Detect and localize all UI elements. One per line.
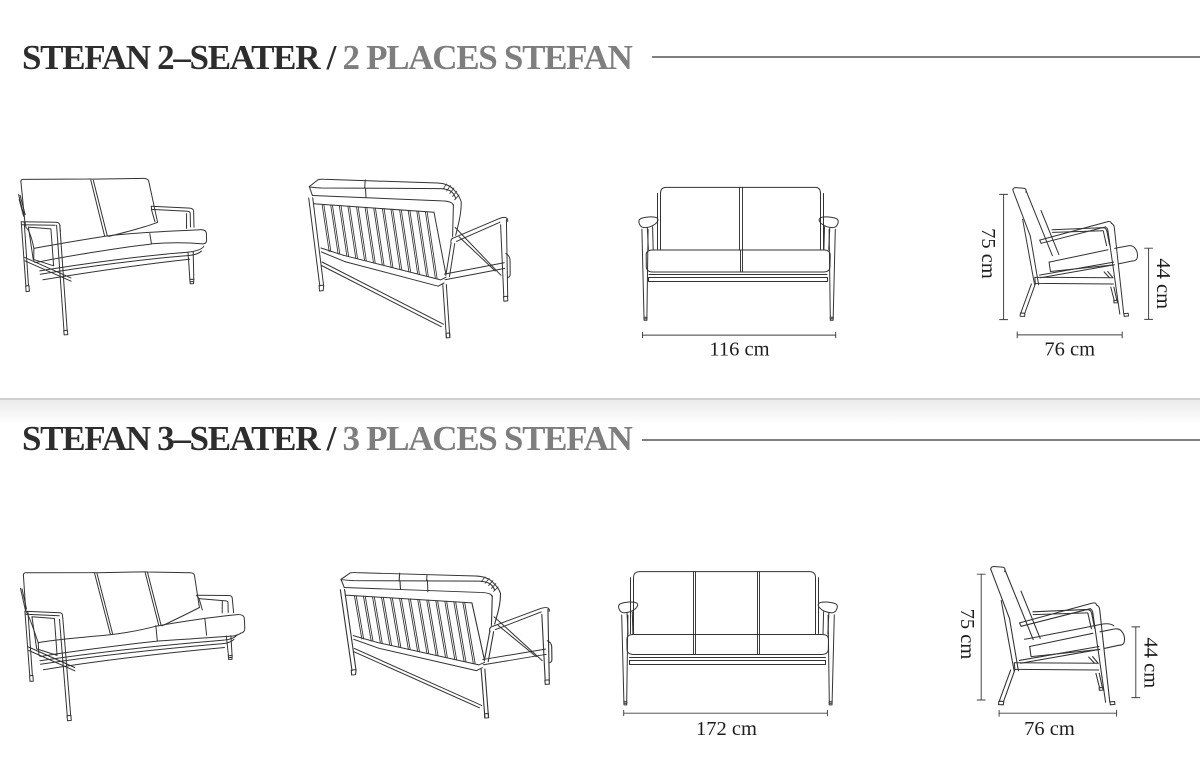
svg-text:116 cm: 116 cm xyxy=(709,339,769,361)
svg-text:44 cm: 44 cm xyxy=(1152,258,1174,309)
svg-text:75 cm: 75 cm xyxy=(977,228,999,279)
svg-text:75 cm: 75 cm xyxy=(956,609,978,660)
svg-text:76 cm: 76 cm xyxy=(1024,718,1075,740)
svg-text:76 cm: 76 cm xyxy=(1044,339,1095,361)
svg-text:172 cm: 172 cm xyxy=(696,718,757,740)
svg-text:44 cm: 44 cm xyxy=(1140,637,1162,688)
